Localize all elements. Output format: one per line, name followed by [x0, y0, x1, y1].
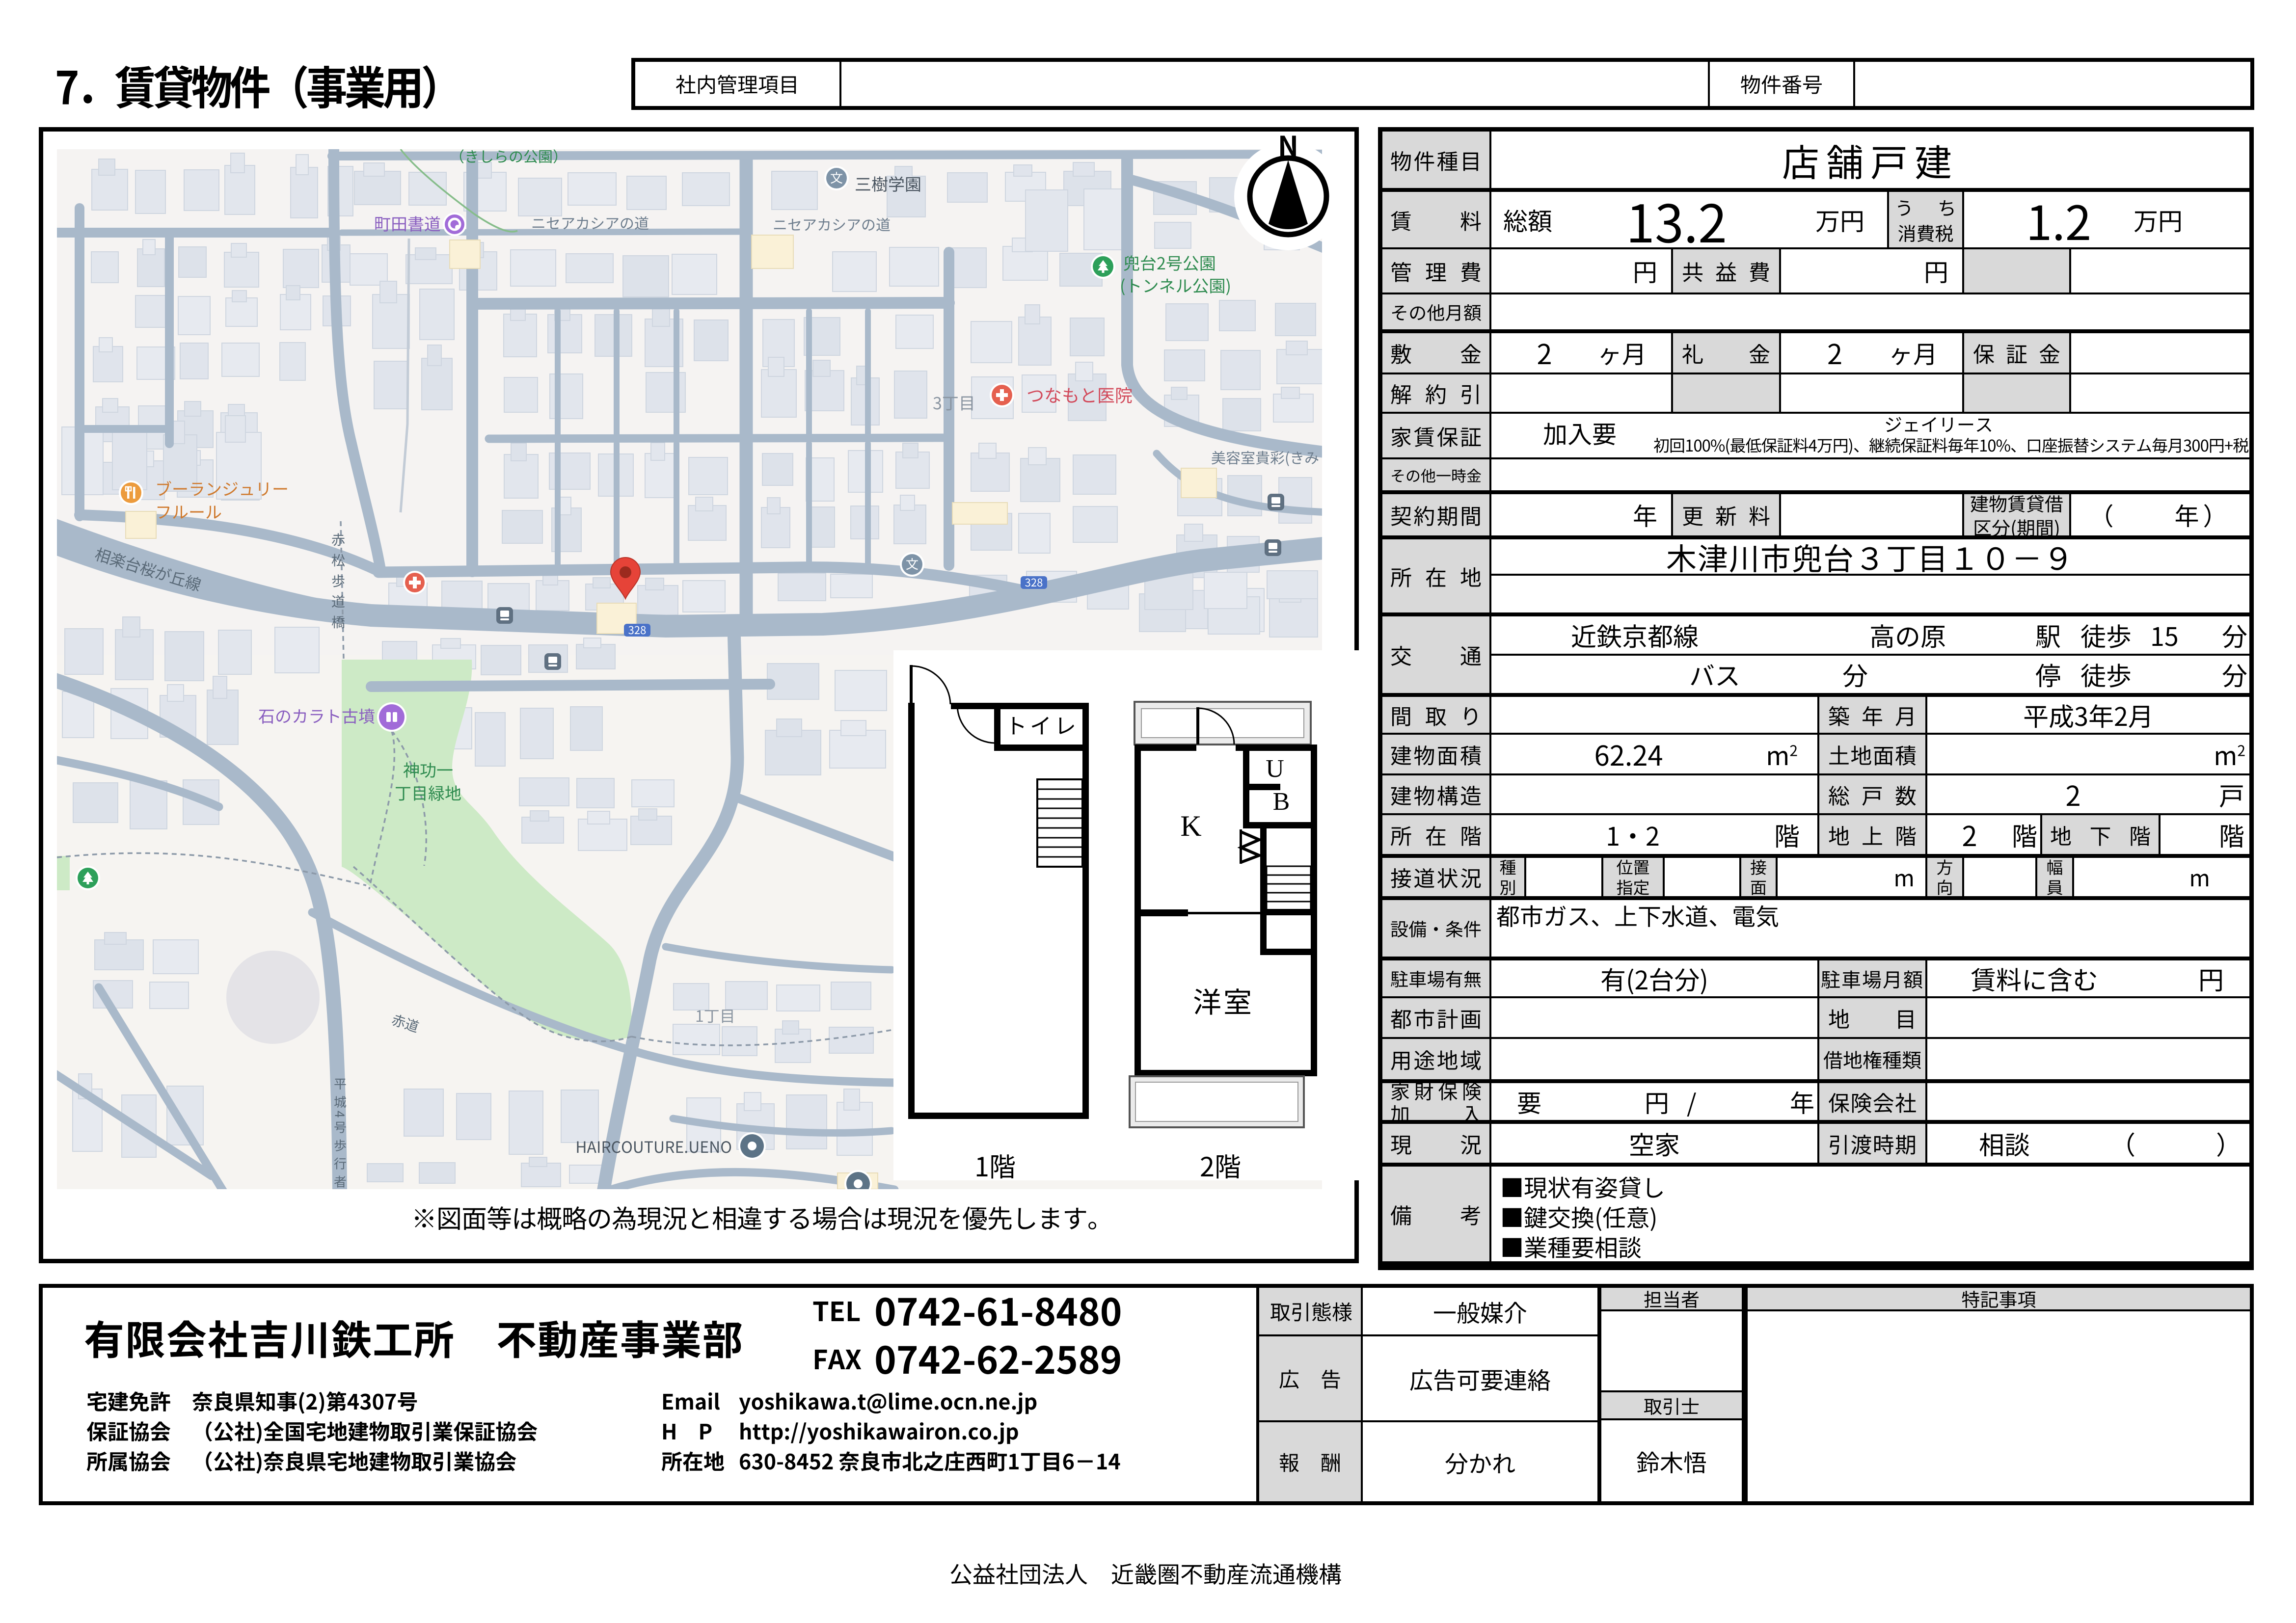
- svg-text:2階: 2階: [1200, 1145, 1241, 1180]
- svg-text:洋室: 洋室: [1193, 980, 1254, 1021]
- svg-text:328: 328: [628, 622, 647, 638]
- svg-text:B: B: [1273, 788, 1290, 816]
- svg-text:赤松歩道橋: 赤松歩道橋: [328, 530, 348, 633]
- svg-text:平城4号歩行者専用道路: 平城4号歩行者専用道路: [331, 1074, 350, 1189]
- svg-text:ニセアカシアの道: ニセアカシアの道: [773, 213, 891, 235]
- svg-text:（きしらの公園）: （きしらの公園）: [450, 149, 567, 166]
- svg-text:U: U: [1266, 755, 1284, 783]
- svg-text:町田書道: 町田書道: [374, 211, 441, 235]
- svg-text:1階: 1階: [974, 1145, 1016, 1180]
- svg-text:三樹学園: 三樹学園: [855, 171, 921, 195]
- svg-text:N: N: [1278, 133, 1298, 164]
- svg-text:石のカラト古墳: 石のカラト古墳: [258, 703, 375, 727]
- svg-text:トイレ: トイレ: [1005, 709, 1079, 740]
- svg-text:K: K: [1180, 810, 1201, 842]
- svg-text:丁目緑地: 丁目緑地: [395, 780, 461, 804]
- svg-text:1丁目: 1丁目: [695, 1004, 735, 1027]
- svg-text:328: 328: [1025, 574, 1043, 590]
- svg-text:3丁目: 3丁目: [933, 390, 975, 414]
- svg-text:文: 文: [830, 168, 843, 186]
- svg-text:美容室貴彩(きみ: 美容室貴彩(きみ: [1211, 446, 1319, 468]
- svg-text:(トンネル公園): (トンネル公園): [1120, 273, 1231, 297]
- svg-text:フルール: フルール: [155, 499, 222, 523]
- svg-text:ブーランジュリー: ブーランジュリー: [155, 476, 289, 500]
- svg-text:HAIRCOUTURE.UENO: HAIRCOUTURE.UENO: [575, 1135, 732, 1158]
- svg-text:神功一: 神功一: [403, 757, 453, 781]
- svg-text:兜台2号公園: 兜台2号公園: [1123, 250, 1216, 274]
- svg-text:文: 文: [906, 555, 918, 573]
- svg-text:ニセアカシアの道: ニセアカシアの道: [531, 212, 649, 233]
- svg-text:つなもと医院: つなもと医院: [1026, 382, 1133, 407]
